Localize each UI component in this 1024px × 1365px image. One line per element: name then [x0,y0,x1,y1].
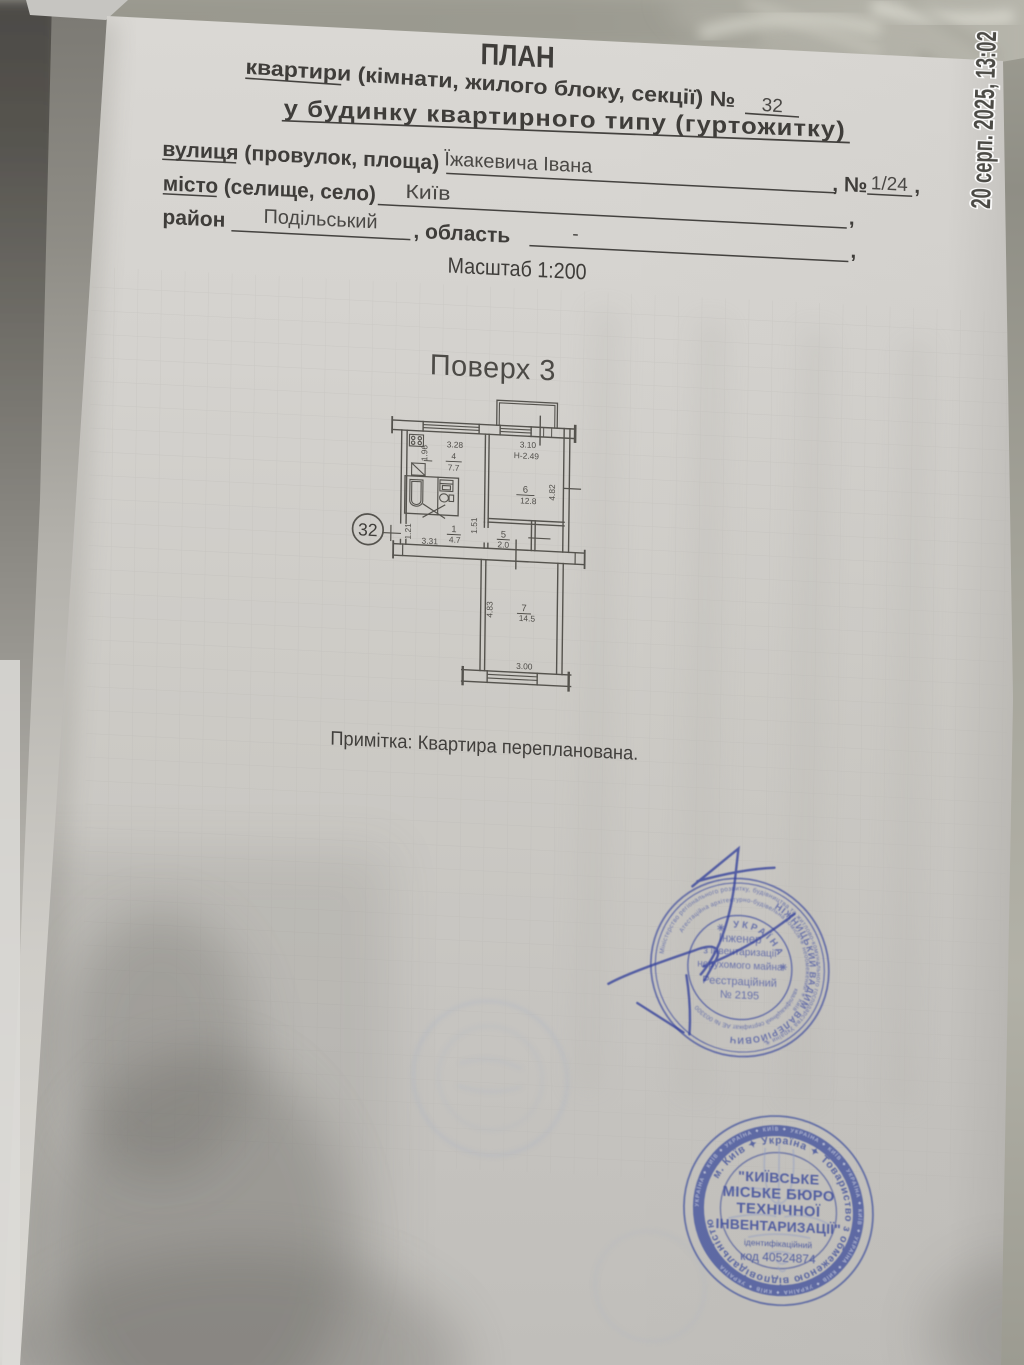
svg-text:20 серп. 2025, 13:02: 20 серп. 2025, 13:02 [966,31,1003,210]
svg-text:№ 2195: № 2195 [720,989,759,1003]
svg-text:4.7: 4.7 [449,534,461,545]
svg-text:1.96: 1.96 [419,444,429,461]
svg-text:, №: , № [832,173,867,198]
svg-text:,: , [849,207,855,230]
svg-text:ПЛАН: ПЛАН [480,38,554,75]
svg-text:6: 6 [523,485,528,496]
svg-text:4.82: 4.82 [547,484,557,501]
svg-text:район: район [162,206,225,232]
svg-text:14.5: 14.5 [519,613,536,624]
svg-text:1.51: 1.51 [469,517,479,534]
svg-text:3.10: 3.10 [520,439,537,450]
svg-text:, область: , область [413,220,510,248]
svg-text:1.21: 1.21 [403,523,413,540]
svg-text:Київ: Київ [405,181,450,205]
svg-text:4.83: 4.83 [484,601,494,618]
svg-text:7.7: 7.7 [448,462,460,473]
svg-text:32: 32 [358,519,378,540]
svg-text:3.31: 3.31 [422,535,439,546]
svg-text:,: , [914,175,920,198]
svg-text:Н-2.49: Н-2.49 [514,450,540,461]
svg-text:1/24: 1/24 [871,173,909,196]
svg-text:3.28: 3.28 [447,439,464,450]
svg-text:2.0: 2.0 [497,539,509,550]
svg-text:12.8: 12.8 [520,495,537,506]
svg-text:4: 4 [451,451,456,461]
svg-text:,: , [850,240,856,263]
svg-text:Поверх 3: Поверх 3 [430,349,556,387]
svg-text:3.00: 3.00 [516,661,533,672]
svg-text:-: - [572,224,579,245]
